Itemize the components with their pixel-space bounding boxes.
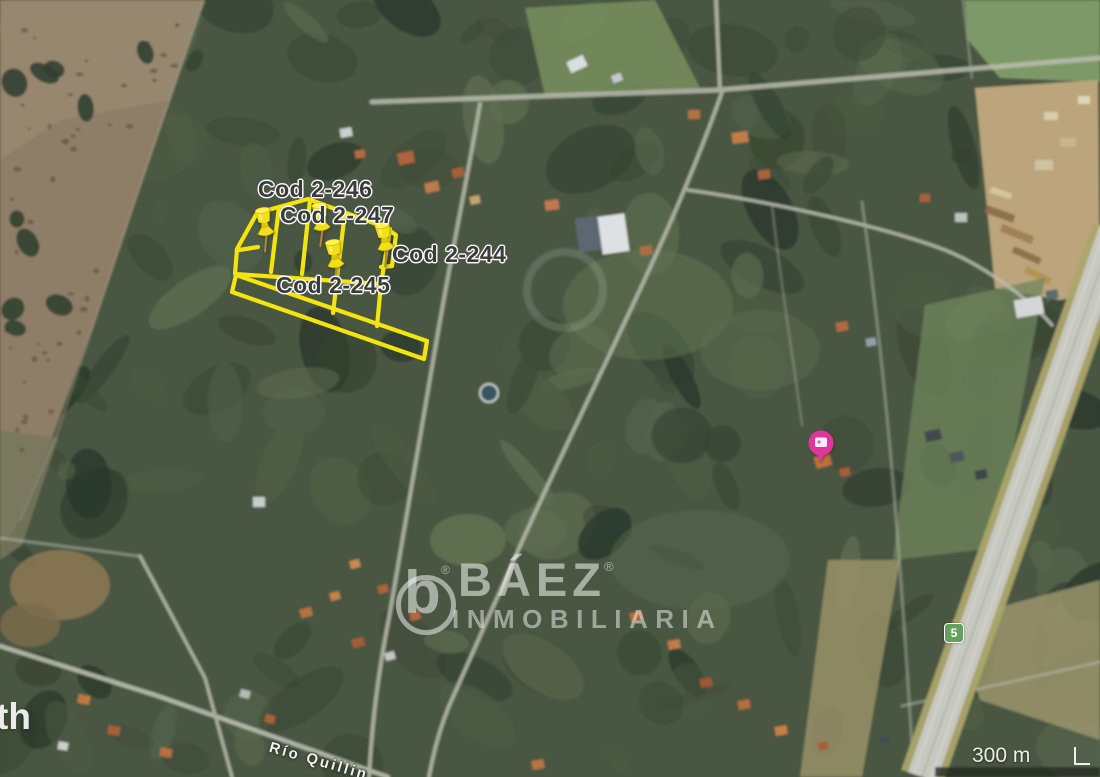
map-terrain [0, 0, 1100, 777]
satellite-map[interactable]: Cod 2-246 Cod 2-247 Cod 2-244 Cod 2-245 … [0, 0, 1100, 777]
map-canvas[interactable] [0, 0, 1100, 777]
